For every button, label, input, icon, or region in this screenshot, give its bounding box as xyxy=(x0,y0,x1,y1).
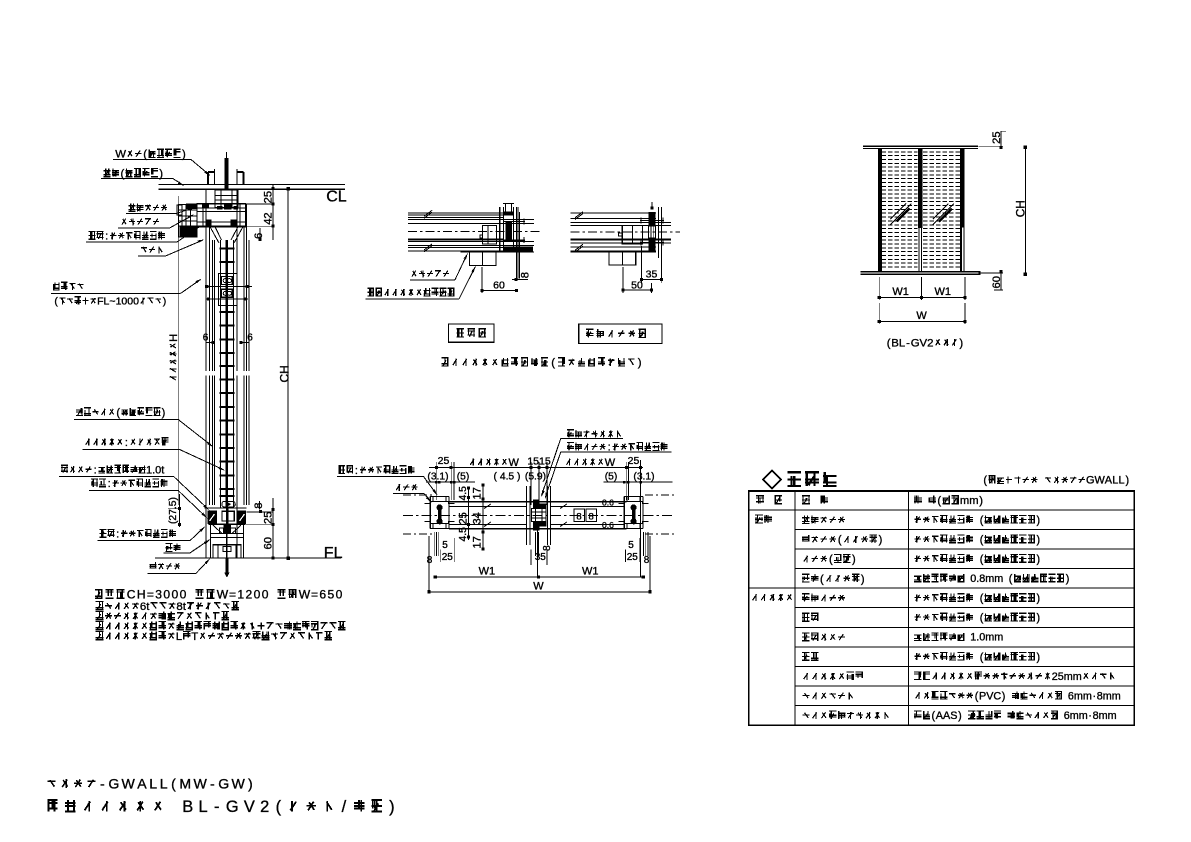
svg-text:650: 650 xyxy=(319,587,343,601)
svg-text:8: 8 xyxy=(576,511,581,522)
svg-text:5: 5 xyxy=(628,540,634,551)
svg-text:( 4.5 ): ( 4.5 ) xyxy=(494,472,521,483)
svg-text:W: W xyxy=(533,580,544,592)
svg-text:17: 17 xyxy=(472,536,484,548)
svg-text:W: W xyxy=(217,587,230,601)
svg-text:W1: W1 xyxy=(479,566,496,578)
svg-text:8: 8 xyxy=(644,555,650,566)
svg-text:8mm: 8mm xyxy=(1097,690,1121,702)
svg-text:25mm: 25mm xyxy=(1052,671,1082,683)
svg-text:G: G xyxy=(218,775,229,791)
svg-text:(: ( xyxy=(143,149,147,161)
svg-text:1.0t: 1.0t xyxy=(146,464,164,476)
svg-text:L: L xyxy=(1118,475,1124,487)
svg-text:): ) xyxy=(159,168,163,180)
svg-text:(: ( xyxy=(980,651,984,663)
svg-text:W: W xyxy=(231,775,245,791)
svg-text:): ) xyxy=(182,149,186,161)
svg-text:): ) xyxy=(1036,651,1040,663)
svg-text:): ) xyxy=(879,534,883,546)
svg-text:): ) xyxy=(1125,475,1129,487)
svg-text:42: 42 xyxy=(263,212,275,224)
svg-text:5: 5 xyxy=(442,540,448,551)
svg-text:35: 35 xyxy=(535,552,547,563)
svg-text:8: 8 xyxy=(520,272,532,278)
svg-text:): ) xyxy=(1036,534,1040,546)
svg-text:): ) xyxy=(389,798,394,816)
svg-text:(: ( xyxy=(980,534,984,546)
svg-text:): ) xyxy=(638,357,642,369)
svg-text:(5): (5) xyxy=(605,472,618,483)
svg-text:W: W xyxy=(122,775,136,791)
svg-text:AAS: AAS xyxy=(936,710,958,722)
svg-text::: : xyxy=(94,464,97,476)
svg-text:): ) xyxy=(861,573,865,585)
svg-text:W: W xyxy=(115,149,126,161)
svg-text:M: M xyxy=(179,775,191,791)
svg-text:(5): (5) xyxy=(457,472,470,483)
svg-text:GV2: GV2 xyxy=(911,337,934,349)
svg-text:W: W xyxy=(193,775,207,791)
svg-text:PVC: PVC xyxy=(979,690,1001,702)
svg-text:25: 25 xyxy=(263,512,275,524)
svg-text:25: 25 xyxy=(263,191,275,203)
svg-text:(: ( xyxy=(887,337,891,349)
svg-text:L: L xyxy=(199,798,208,816)
svg-text:W: W xyxy=(299,587,312,601)
svg-text:·: · xyxy=(1088,710,1092,722)
svg-text:CH: CH xyxy=(277,365,291,382)
svg-text:T: T xyxy=(191,631,198,643)
svg-text:0.6: 0.6 xyxy=(602,520,614,530)
svg-text:): ) xyxy=(1036,593,1040,605)
svg-text:(: ( xyxy=(116,407,120,419)
svg-text:25: 25 xyxy=(438,455,450,467)
svg-text:=: = xyxy=(229,587,236,601)
svg-text:mm: mm xyxy=(960,495,979,507)
svg-text:): ) xyxy=(248,775,253,791)
svg-text:35: 35 xyxy=(646,269,658,281)
svg-text:8mm: 8mm xyxy=(1093,710,1117,722)
svg-text:6mm: 6mm xyxy=(1068,690,1092,702)
svg-text:0.6: 0.6 xyxy=(602,498,614,508)
svg-text:H: H xyxy=(168,334,180,342)
svg-text:-: - xyxy=(210,775,215,791)
svg-text:(: ( xyxy=(829,554,833,566)
svg-text:W: W xyxy=(605,457,616,469)
svg-text:(5.9): (5.9) xyxy=(525,472,546,483)
svg-text:(: ( xyxy=(171,775,176,791)
svg-text:3000: 3000 xyxy=(155,587,188,601)
svg-text:W1: W1 xyxy=(935,286,952,298)
svg-text:A: A xyxy=(137,775,147,791)
svg-text:-: - xyxy=(906,337,910,349)
svg-text:(: ( xyxy=(980,514,984,526)
svg-text:W: W xyxy=(916,310,927,322)
svg-text:6mm: 6mm xyxy=(1064,710,1088,722)
svg-text:=: = xyxy=(147,587,154,601)
svg-text::: : xyxy=(125,437,128,449)
svg-text:-: - xyxy=(214,798,219,816)
svg-text:FL: FL xyxy=(97,295,109,307)
svg-text:(: ( xyxy=(276,798,282,816)
svg-text:(: ( xyxy=(983,475,987,487)
svg-text:8t: 8t xyxy=(176,601,186,613)
svg-text:L: L xyxy=(149,775,157,791)
svg-text:/: / xyxy=(342,798,347,816)
svg-text:L: L xyxy=(1112,475,1118,487)
svg-text:(: ( xyxy=(937,495,941,507)
svg-text:60: 60 xyxy=(493,280,505,292)
svg-text:(3.1): (3.1) xyxy=(427,472,448,483)
svg-text:): ) xyxy=(1002,690,1006,702)
svg-text:(: ( xyxy=(820,573,824,585)
svg-text:): ) xyxy=(1036,612,1040,624)
svg-text:6t: 6t xyxy=(140,601,150,613)
svg-text:): ) xyxy=(1066,573,1070,585)
svg-text:(27.5): (27.5) xyxy=(168,497,179,524)
svg-text:25: 25 xyxy=(458,512,470,524)
svg-text:CL: CL xyxy=(326,189,347,206)
svg-text:V: V xyxy=(244,798,255,816)
svg-text:BL: BL xyxy=(891,337,905,349)
svg-text:W: W xyxy=(509,457,520,469)
svg-text:1200: 1200 xyxy=(237,587,270,601)
svg-text:-: - xyxy=(100,775,105,791)
svg-text:0.8mm: 0.8mm xyxy=(970,573,1003,585)
svg-text:25: 25 xyxy=(628,455,640,467)
svg-text:(: ( xyxy=(838,534,842,546)
svg-text:): ) xyxy=(163,295,167,307)
svg-text::: : xyxy=(355,465,358,477)
svg-text:8: 8 xyxy=(589,511,594,522)
svg-text:W1: W1 xyxy=(582,566,599,578)
svg-text:(: ( xyxy=(980,612,984,624)
svg-text:W1: W1 xyxy=(892,286,909,298)
svg-text:8: 8 xyxy=(542,545,553,551)
svg-text:25: 25 xyxy=(627,552,639,563)
svg-text:(: ( xyxy=(54,295,58,307)
svg-text:): ) xyxy=(1036,514,1040,526)
svg-text:G: G xyxy=(108,775,119,791)
svg-text:(: ( xyxy=(551,357,555,369)
svg-text:(: ( xyxy=(121,168,125,180)
svg-text:2: 2 xyxy=(260,798,269,816)
svg-text:1000: 1000 xyxy=(116,295,140,307)
svg-text:1.0mm: 1.0mm xyxy=(970,632,1003,644)
svg-text:G: G xyxy=(1086,475,1094,487)
svg-text:25: 25 xyxy=(991,131,1003,143)
svg-text:): ) xyxy=(1036,554,1040,566)
svg-text:FL: FL xyxy=(324,545,343,562)
svg-text:(: ( xyxy=(980,554,984,566)
svg-text:60: 60 xyxy=(263,537,275,549)
svg-text:17: 17 xyxy=(472,487,484,499)
svg-text::: : xyxy=(108,478,111,490)
svg-text:=: = xyxy=(311,587,318,601)
svg-text:(3.1): (3.1) xyxy=(633,472,654,483)
svg-text:L: L xyxy=(160,775,168,791)
svg-text:): ) xyxy=(958,710,962,722)
svg-text:CH: CH xyxy=(1013,200,1027,217)
svg-text:60: 60 xyxy=(991,276,1003,288)
svg-text:·: · xyxy=(1092,690,1096,702)
svg-text:(: ( xyxy=(1009,573,1013,585)
svg-text::: : xyxy=(105,231,108,243)
svg-text:50: 50 xyxy=(631,279,643,291)
svg-text::: : xyxy=(116,528,119,540)
svg-text:8: 8 xyxy=(253,502,265,508)
svg-text:): ) xyxy=(979,495,983,507)
svg-text:25: 25 xyxy=(442,552,454,563)
svg-text:(: ( xyxy=(980,593,984,605)
svg-text:): ) xyxy=(959,337,963,349)
svg-text:34: 34 xyxy=(472,512,484,524)
svg-text:G: G xyxy=(226,798,239,816)
svg-text:L: L xyxy=(176,631,182,643)
svg-text:4.5: 4.5 xyxy=(458,527,469,542)
svg-text:): ) xyxy=(162,407,166,419)
svg-text:): ) xyxy=(852,554,856,566)
svg-text:B: B xyxy=(182,798,193,816)
svg-text:CH: CH xyxy=(127,587,147,601)
svg-text:8: 8 xyxy=(427,555,433,566)
